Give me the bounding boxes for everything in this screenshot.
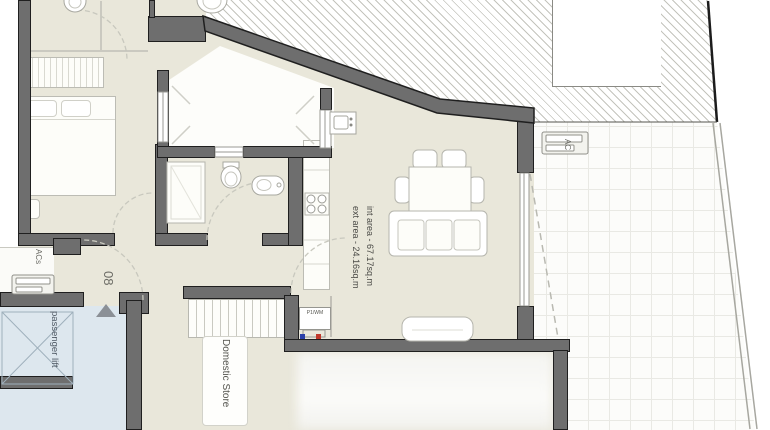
wall-bottom-long [284,339,570,352]
wall-exterior-left [18,0,31,246]
wall-shaft-right [320,88,332,110]
entry-direction-arrow [96,304,116,317]
kitchen-counter [303,140,330,290]
domestic-store-label: Domestic Store [220,339,231,407]
lift-lobby [0,306,126,430]
wall-shaft-bottom-right [243,146,332,158]
pillow [61,100,91,117]
wall-store-left [126,300,142,430]
floor-plan-canvas: P1/WM [0,0,770,430]
wardrobe [20,57,104,88]
wall-niche-chunk [53,238,81,255]
bed-fold-line [21,119,115,120]
wall-living-right-top [517,121,534,173]
washing-machine: P1/WM [299,307,331,330]
unit-number-label: 08 [101,271,116,285]
area-annotation: int area - 67.17sq.m ext area - 24.16sq.… [349,206,377,289]
wall-bathroom-bottom-left [155,233,208,246]
ac-facade-label: ACs [34,249,43,264]
pillow [27,100,57,117]
blurred-adjacent-unit [297,352,553,430]
adjacent-roof-notch [552,0,661,87]
ac-facade-niche [0,247,54,295]
wall-shaft-bottom-left [157,146,215,158]
wall-lift-bottom [0,376,73,389]
washing-machine-label: P1/WM [300,310,330,316]
wall-stairs-top [183,286,291,299]
double-bed [20,96,116,196]
wall-bathroom-right [288,151,303,246]
passenger-lift-label: passenger lift [49,311,60,368]
wall-bottom-right-vertical [553,350,568,430]
wall-shaft-left [157,70,169,158]
wall-party-corner [148,16,206,42]
wall-thin-top [149,0,155,18]
staircase [188,299,288,338]
ext-area-text: ext area - 24.16sq.m [349,206,363,289]
ac-terrace-label: AC [563,139,572,150]
wall-hall-bottom [0,292,84,307]
int-area-text: int area - 67.17sq.m [363,206,377,289]
wall-bathroom-left [155,144,168,246]
